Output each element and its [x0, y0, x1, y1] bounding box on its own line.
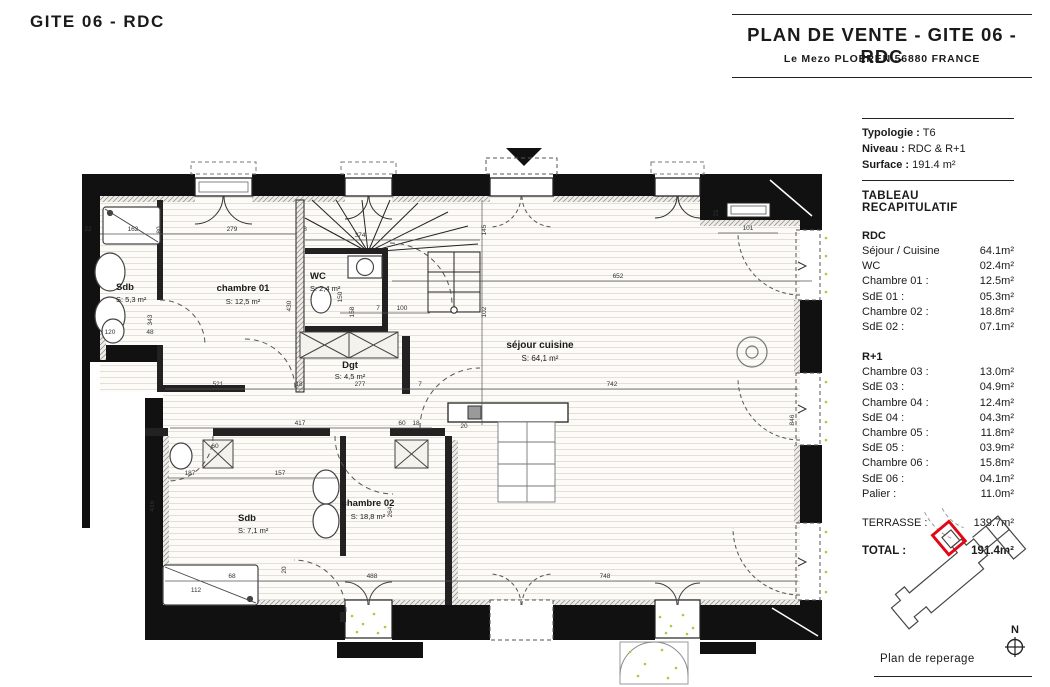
row-label: SdE 01 : — [862, 290, 904, 305]
room-area: S: 7,1 m² — [238, 526, 269, 535]
table-row: Chambre 06 :15.8m² — [862, 456, 1014, 471]
dim: 521 — [213, 381, 224, 388]
dim: 279 — [227, 226, 238, 233]
row-label: SdE 02 : — [862, 320, 904, 335]
dim: 7 — [376, 305, 380, 312]
dim: 8 — [303, 226, 307, 233]
dim: 652 — [613, 273, 624, 280]
row-value: 04.9m² — [980, 380, 1014, 395]
row-value: 02.4m² — [980, 259, 1014, 274]
dim: 157 — [275, 470, 286, 477]
dim: 101 — [743, 225, 754, 232]
room-name: Sdb — [116, 282, 134, 293]
dim: 374 — [355, 232, 366, 239]
recap-heading: TABLEAU RECAPITULATIF — [862, 190, 1014, 214]
room-area: S: 4,5 m² — [335, 372, 366, 381]
dim: 277 — [355, 381, 366, 388]
site-map-caption: Plan de reperage — [880, 653, 1000, 665]
row-label: Chambre 05 : — [862, 426, 929, 441]
info-bottom-rule — [862, 180, 1014, 181]
dim: 80 — [156, 226, 163, 234]
dim: 416 — [149, 500, 156, 511]
room-name: Dgt — [342, 360, 359, 371]
row-value: 11.8m² — [981, 426, 1014, 441]
building-outline — [873, 508, 1026, 639]
row-value: 04.3m² — [980, 411, 1014, 426]
dim: 100 — [397, 305, 408, 312]
dim: 846 — [789, 414, 796, 425]
row-value: 64.1m² — [980, 244, 1014, 259]
room-area: S: 18,8 m² — [351, 512, 386, 521]
table-row: WC02.4m² — [862, 259, 1014, 274]
dim: 18 — [412, 420, 420, 427]
panel-bottom-rule — [874, 676, 1032, 677]
row-label: Chambre 06 : — [862, 456, 929, 471]
dim: 22 — [84, 226, 92, 233]
row-value: 11.0m² — [981, 487, 1014, 502]
row-value: 12.4m² — [980, 396, 1014, 411]
typologie-label: Typologie : — [862, 127, 920, 139]
row-label: SdE 06 : — [862, 472, 904, 487]
row-value: 15.8m² — [980, 456, 1014, 471]
rdc-section-title: RDC — [862, 230, 1014, 242]
row-label: Chambre 03 : — [862, 365, 929, 380]
floor-plan: 279 374 652 101 22 162 120 48 521 18 277… — [0, 0, 860, 687]
niveau-row: Niveau : RDC & R+1 — [862, 141, 1014, 157]
dim: 162 — [128, 226, 139, 233]
table-row: SdE 05 :03.9m² — [862, 441, 1014, 456]
room-name: WC — [310, 271, 326, 282]
row-label: Séjour / Cuisine — [862, 244, 940, 259]
dim: 343 — [147, 314, 154, 325]
row-label: Palier : — [862, 487, 896, 502]
room-area: S: 12,5 m² — [226, 297, 261, 306]
dim: 742 — [607, 381, 618, 388]
table-row: Chambre 05 :11.8m² — [862, 426, 1014, 441]
niveau-value: RDC & R+1 — [908, 143, 966, 155]
typologie-value: T6 — [923, 127, 936, 139]
room-name: chambre 01 — [217, 283, 271, 294]
room-name: séjour cuisine — [506, 340, 574, 351]
typologie-row: Typologie : T6 — [862, 125, 1014, 141]
room-name: Sdb — [238, 513, 256, 524]
table-row: Chambre 04 :12.4m² — [862, 396, 1014, 411]
typology-block: Typologie : T6 Niveau : RDC & R+1 Surfac… — [862, 119, 1014, 180]
table-row: SdE 04 :04.3m² — [862, 411, 1014, 426]
dim: 488 — [367, 573, 378, 580]
summary-panel: Typologie : T6 Niveau : RDC & R+1 Surfac… — [862, 118, 1014, 559]
room-area: S: 2,4 m² — [310, 284, 341, 293]
row-label: Chambre 04 : — [862, 396, 929, 411]
table-row: SdE 01 :05.3m² — [862, 290, 1014, 305]
row-label: SdE 03 : — [862, 380, 904, 395]
dim: 112 — [191, 587, 202, 594]
dim: 120 — [105, 329, 116, 336]
road-line — [925, 512, 954, 539]
table-row: Chambre 03 :13.0m² — [862, 365, 1014, 380]
table-row: Palier :11.0m² — [862, 487, 1014, 502]
row-label: WC — [862, 259, 880, 274]
dim: 48 — [146, 329, 154, 336]
table-row: SdE 02 :07.1m² — [862, 320, 1014, 335]
dim: 20 — [460, 423, 468, 430]
room-name: chambre 02 — [342, 498, 395, 509]
unit-highlight — [932, 521, 965, 554]
row-label: Chambre 01 : — [862, 274, 929, 289]
room-area: S: 5,3 m² — [116, 295, 147, 304]
dim: 145 — [481, 224, 488, 235]
row-value: 07.1m² — [980, 320, 1014, 335]
surface-label: Surface : — [862, 159, 909, 171]
entrance-marker — [506, 148, 542, 166]
row-value: 12.5m² — [980, 274, 1014, 289]
dim: 430 — [286, 300, 293, 311]
table-row: Chambre 01 :12.5m² — [862, 274, 1014, 289]
north-indicator: N — [1003, 624, 1027, 661]
row-value: 04.1m² — [980, 472, 1014, 487]
dim: 60 — [398, 420, 406, 427]
dim: 21 — [713, 209, 720, 217]
row-label: SdE 04 : — [862, 411, 904, 426]
row-value: 18.8m² — [980, 305, 1014, 320]
plan-de-vente-page: { "header": { "page_title": "GITE 06 - R… — [0, 0, 1050, 687]
r1-section-title: R+1 — [862, 351, 1014, 363]
room-area: S: 64,1 m² — [522, 354, 559, 363]
dim: 60 — [211, 443, 219, 450]
dim: 187 — [185, 470, 196, 477]
north-label: N — [1011, 624, 1019, 636]
dim: 18 — [295, 381, 303, 388]
dim: 20 — [281, 566, 288, 574]
table-row: Séjour / Cuisine64.1m² — [862, 244, 1014, 259]
dim: 748 — [600, 573, 611, 580]
surface-value: 191.4 m² — [912, 159, 955, 171]
dim: 158 — [349, 306, 356, 317]
row-label: Chambre 02 : — [862, 305, 929, 320]
table-row: SdE 06 :04.1m² — [862, 472, 1014, 487]
dim: 68 — [228, 573, 236, 580]
dim: 7 — [418, 381, 422, 388]
surface-row: Surface : 191.4 m² — [862, 157, 1014, 173]
dim: 102 — [481, 306, 488, 317]
niveau-label: Niveau : — [862, 143, 905, 155]
row-value: 03.9m² — [980, 441, 1014, 456]
compass-icon — [1004, 636, 1026, 658]
dim: 417 — [295, 420, 306, 427]
table-row: SdE 03 :04.9m² — [862, 380, 1014, 395]
row-value: 05.3m² — [980, 290, 1014, 305]
table-row: Chambre 02 :18.8m² — [862, 305, 1014, 320]
row-label: SdE 05 : — [862, 441, 904, 456]
row-value: 13.0m² — [980, 365, 1014, 380]
